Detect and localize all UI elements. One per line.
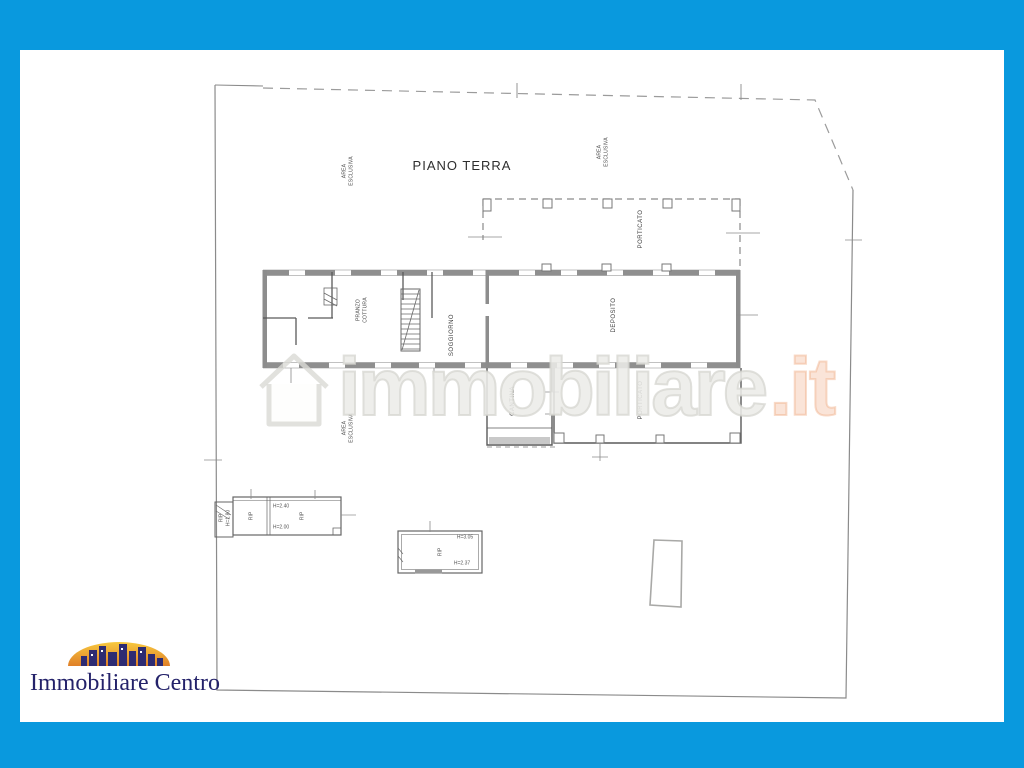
- annotation-h240: H=2.40: [273, 504, 289, 511]
- annotation-shed: RIP H=1.80: [218, 510, 232, 526]
- room-label-pranzo-cottura: PRANZO COTTURA: [355, 297, 369, 323]
- area-esclusiva-label-top-left: AREA ESCLUSIVA: [341, 156, 355, 186]
- annotation-h200: H=2.00: [273, 525, 289, 532]
- annotation-rip-middle: RIP: [438, 548, 445, 556]
- room-label-cantina: CANTINA: [509, 386, 517, 416]
- logo-skyline-icon: [24, 634, 226, 668]
- annotation-h305: H=3.05: [457, 535, 473, 542]
- bottom-wall-segments: [263, 363, 740, 369]
- room-label-soggiorno: SOGGIORNO: [448, 314, 456, 356]
- room-label-porticato-bottom: PORTICATO: [637, 381, 645, 420]
- cantina-room: [487, 368, 559, 445]
- agency-name: Immobiliare Centro: [24, 670, 226, 697]
- room-label-deposito: DEPOSITO: [610, 298, 618, 333]
- closet-hatch: [324, 288, 337, 306]
- staircase: [401, 289, 420, 351]
- site-boundary: [204, 83, 862, 698]
- room-label-porticato-top: PORTICATO: [637, 210, 645, 249]
- porticato-top-structure: [468, 199, 760, 268]
- annotation-h237: H=2.37: [454, 561, 470, 568]
- plan-title: PIANO TERRA: [413, 157, 512, 175]
- annotation-rip-room1: RIP: [249, 512, 256, 520]
- floor-plan: immobiliare.it: [0, 0, 1024, 768]
- main-building: [263, 264, 759, 383]
- porticato-bottom-structure: [487, 368, 741, 461]
- annotation-rip-room2: RIP: [300, 512, 307, 520]
- pool-outline: [650, 540, 682, 607]
- agency-logo: Immobiliare Centro: [24, 634, 226, 697]
- area-esclusiva-label-bottom: AREA ESCLUSIVA: [341, 413, 355, 443]
- area-esclusiva-label-top-right: AREA ESCLUSIVA: [596, 137, 610, 167]
